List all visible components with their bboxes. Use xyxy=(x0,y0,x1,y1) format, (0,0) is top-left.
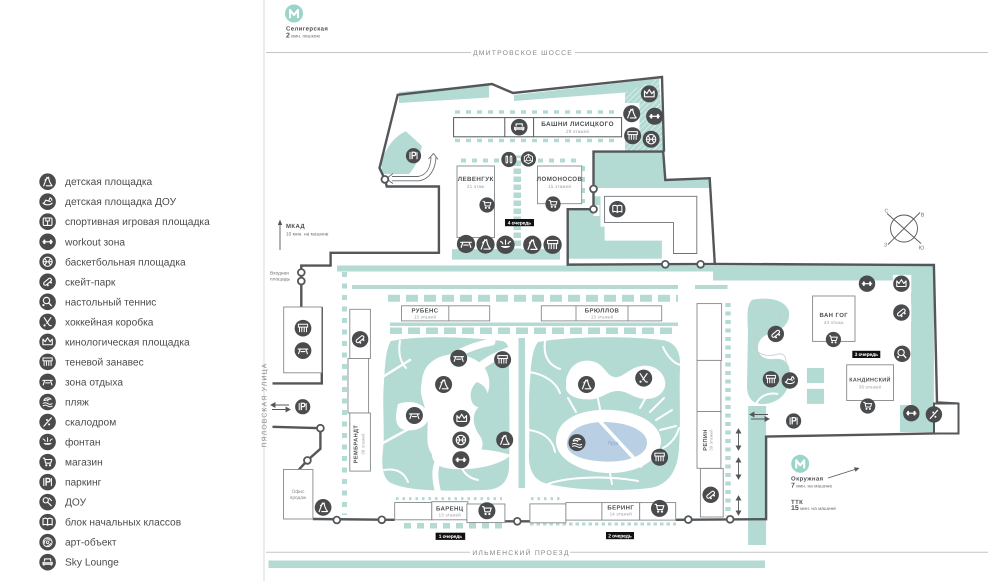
svg-text:хоккейная коробка: хоккейная коробка xyxy=(65,317,154,328)
svg-text:ДМИТРОВСКОЕ ШОССЕ: ДМИТРОВСКОЕ ШОССЕ xyxy=(473,50,573,57)
svg-text:1 очередь: 1 очередь xyxy=(439,534,463,540)
svg-text:площадь: площадь xyxy=(270,278,291,283)
svg-text:ИЛЬМЕНСКИЙ ПРОЕЗД: ИЛЬМЕНСКИЙ ПРОЕЗД xyxy=(472,548,569,557)
svg-text:Ю: Ю xyxy=(919,246,925,252)
svg-text:паркинг: паркинг xyxy=(65,478,102,489)
svg-text:38 этажей: 38 этажей xyxy=(361,433,366,455)
svg-text:магазин: магазин xyxy=(65,458,103,469)
svg-text:workout зона: workout зона xyxy=(64,237,125,248)
svg-text:ЛЕВЕНГУК: ЛЕВЕНГУК xyxy=(458,176,494,183)
svg-text:Входная: Входная xyxy=(270,271,289,277)
svg-text:БЕРИНГ: БЕРИНГ xyxy=(607,505,634,512)
svg-text:арт-объект: арт-объект xyxy=(65,538,117,549)
svg-text:В: В xyxy=(921,213,925,219)
svg-text:детская площадка: детская площадка xyxy=(65,177,153,188)
svg-text:ДОУ: ДОУ xyxy=(65,498,87,509)
svg-text:фонтан: фонтан xyxy=(65,438,101,449)
svg-text:Sky Lounge: Sky Lounge xyxy=(65,558,119,569)
svg-text:кинологическая площадка: кинологическая площадка xyxy=(65,337,190,348)
svg-text:4 очередь: 4 очередь xyxy=(508,220,532,226)
svg-text:Селигерская: Селигерская xyxy=(286,26,328,33)
svg-text:пляж: пляж xyxy=(65,398,89,409)
svg-text:продаж: продаж xyxy=(290,496,307,501)
svg-text:29 этажей: 29 этажей xyxy=(566,129,589,134)
svg-text:скейт-парк: скейт-парк xyxy=(65,277,116,288)
svg-text:13 этажей: 13 этажей xyxy=(439,513,462,518)
svg-text:ПЯЛОВСКАЯ УЛИЦА: ПЯЛОВСКАЯ УЛИЦА xyxy=(262,362,269,447)
svg-text:МКАД: МКАД xyxy=(286,223,305,230)
svg-text:БАРЕНЦ: БАРЕНЦ xyxy=(436,506,464,513)
svg-text:15 этажей: 15 этажей xyxy=(548,184,571,189)
svg-text:зона отдыха: зона отдыха xyxy=(65,377,123,388)
svg-text:10 мин. на машине: 10 мин. на машине xyxy=(286,232,329,238)
svg-text:настольный теннис: настольный теннис xyxy=(65,297,156,308)
svg-text:КАНДИНСКИЙ: КАНДИНСКИЙ xyxy=(849,377,891,384)
svg-text:15 мин. на машине: 15 мин. на машине xyxy=(791,505,836,512)
svg-text:36 этажей: 36 этажей xyxy=(859,385,882,390)
svg-text:Офис: Офис xyxy=(292,489,305,495)
svg-text:РЕМБРАНДТ: РЕМБРАНДТ xyxy=(354,425,360,464)
svg-text:39 этажей: 39 этажей xyxy=(709,429,714,451)
svg-text:спортивная игровая площадка: спортивная игровая площадка xyxy=(65,217,210,228)
svg-text:Окружная: Окружная xyxy=(791,476,824,483)
svg-text:баскетбольная площадка: баскетбольная площадка xyxy=(65,257,186,268)
svg-text:21 этаж: 21 этаж xyxy=(467,184,485,189)
svg-text:БАШНИ ЛИСИЦКОГО: БАШНИ ЛИСИЦКОГО xyxy=(541,121,614,128)
svg-text:43 этажа: 43 этажа xyxy=(824,320,844,325)
svg-text:скалодром: скалодром xyxy=(65,418,116,429)
svg-text:С: С xyxy=(885,209,889,215)
svg-text:13 этажей: 13 этажей xyxy=(414,314,437,319)
svg-text:Пруд: Пруд xyxy=(608,441,619,446)
svg-text:детская площадка ДОУ: детская площадка ДОУ xyxy=(65,197,177,208)
svg-text:З: З xyxy=(884,243,887,249)
svg-text:3 очередь: 3 очередь xyxy=(855,352,879,358)
svg-text:теневой занавес: теневой занавес xyxy=(65,357,144,368)
svg-text:блок начальных классов: блок начальных классов xyxy=(65,518,181,529)
svg-text:14 этажей: 14 этажей xyxy=(610,512,633,517)
svg-text:7 мин. на машине: 7 мин. на машине xyxy=(791,483,832,490)
svg-text:13 этажей: 13 этажей xyxy=(591,314,614,319)
svg-text:2 мин. пешком: 2 мин. пешком xyxy=(286,33,320,40)
svg-text:ВАН ГОГ: ВАН ГОГ xyxy=(820,312,849,319)
svg-text:2 очередь: 2 очередь xyxy=(608,533,632,539)
svg-text:ЛОМОНОСОВ: ЛОМОНОСОВ xyxy=(537,176,583,183)
